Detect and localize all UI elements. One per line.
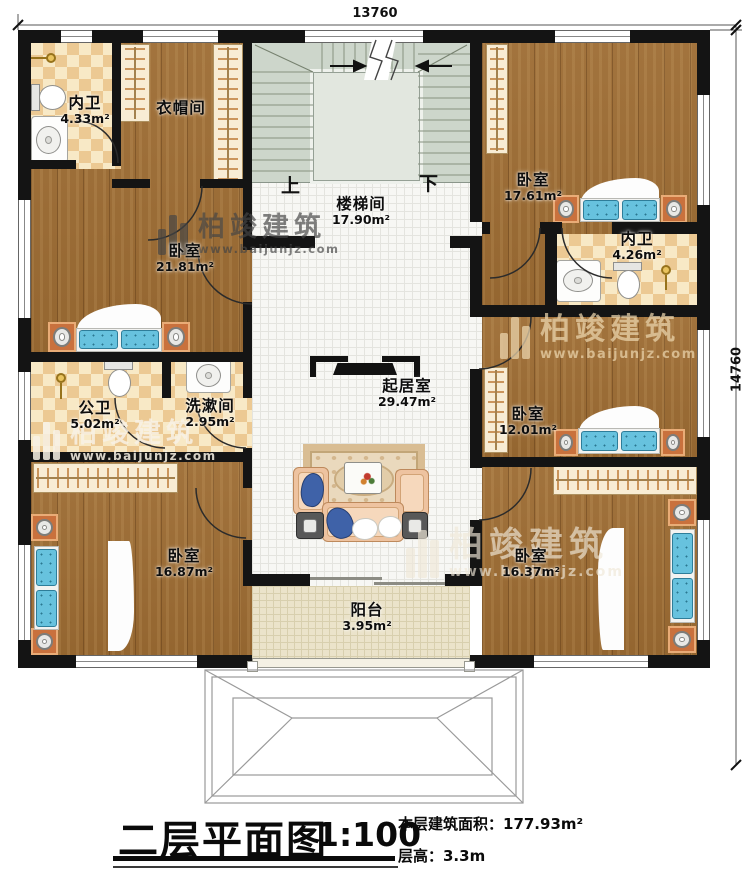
shower-head-icon xyxy=(56,373,66,383)
room-label-bedroom-bottomleft: 卧室 16.87m² xyxy=(155,548,213,579)
room-label-cloakroom: 衣帽间 xyxy=(156,100,206,117)
wall-interior xyxy=(470,30,482,222)
room-area: 12.01m² xyxy=(499,423,557,437)
window xyxy=(697,95,710,205)
sliding-door xyxy=(374,582,445,585)
bed-topleft-pillow xyxy=(79,330,118,349)
tv-bracket-icon xyxy=(414,356,420,377)
wall-interior xyxy=(445,574,470,586)
room-label-bath-right: 内卫 4.26m² xyxy=(612,231,661,262)
wall-interior xyxy=(31,160,76,169)
room-label-stairwell: 楼梯间 17.90m² xyxy=(332,196,390,227)
room-name: 阳台 xyxy=(342,602,391,619)
closet-bedroom-bottomleft xyxy=(33,463,178,493)
sink-icon xyxy=(563,269,593,292)
closet-cloakroom-right xyxy=(213,44,243,186)
bed-bottomright-pillow xyxy=(672,533,693,574)
window xyxy=(697,520,710,640)
side-table-left xyxy=(296,512,324,539)
room-label-bedroom-midright: 卧室 12.01m² xyxy=(499,406,557,437)
room-area: 5.02m² xyxy=(70,417,119,431)
wall-interior xyxy=(243,540,252,586)
nightstand xyxy=(31,628,58,655)
room-area: 2.95m² xyxy=(185,415,235,429)
room-label-living: 起居室 29.47m² xyxy=(378,378,436,409)
porch-roof-outline xyxy=(205,670,523,803)
nightstand xyxy=(661,429,685,456)
stair-up-label: 上 xyxy=(281,171,300,198)
room-name: 起居室 xyxy=(378,378,436,395)
toilet-icon xyxy=(617,270,640,299)
nightstand xyxy=(31,514,58,541)
room-area: 4.26m² xyxy=(612,248,661,262)
bed-midright-pillow xyxy=(621,431,657,451)
closet-bedroom-topright xyxy=(486,44,508,154)
window xyxy=(143,30,218,43)
room-name: 卧室 xyxy=(499,406,557,423)
bed-bottomright-pillow xyxy=(672,578,693,619)
title-underline xyxy=(113,856,395,861)
dimension-right: 14760 xyxy=(730,339,745,401)
room-name: 公卫 xyxy=(70,400,119,417)
window xyxy=(18,200,31,318)
wall-interior xyxy=(540,222,562,234)
room-area: 21.81m² xyxy=(156,260,214,274)
wall-interior xyxy=(243,302,252,398)
wall-interior xyxy=(482,457,697,467)
bed-topleft-pillow xyxy=(121,330,159,349)
wall-interior xyxy=(243,30,252,250)
side-table-right xyxy=(402,512,428,539)
room-label-balcony: 阳台 3.95m² xyxy=(342,602,391,633)
room-label-washroom: 洗漱间 2.95m² xyxy=(185,398,235,429)
sliding-door xyxy=(310,577,382,580)
wall-interior xyxy=(31,452,252,462)
wall-interior xyxy=(162,362,171,398)
nightstand xyxy=(661,195,687,223)
coffee-table xyxy=(344,462,382,494)
bed-bottomright-sheet xyxy=(598,528,624,650)
room-name: 卧室 xyxy=(502,548,560,565)
balcony-rail xyxy=(252,658,470,668)
room-label-bath-topleft: 内卫 4.33m² xyxy=(60,95,109,126)
shower-hose-icon xyxy=(60,383,62,399)
nightstand xyxy=(668,499,696,526)
wall-interior xyxy=(470,248,482,317)
tv-bracket-icon xyxy=(310,356,316,377)
room-label-bath-left: 公卫 5.02m² xyxy=(70,400,119,431)
room-area: 17.61m² xyxy=(504,189,562,203)
room-area: 3.95m² xyxy=(342,619,391,633)
window xyxy=(697,330,710,437)
room-name: 楼梯间 xyxy=(332,196,390,213)
room-name: 卧室 xyxy=(156,243,214,260)
room-area: 16.37m² xyxy=(502,565,560,579)
tv-icon xyxy=(333,363,397,375)
closet-cloakroom-left xyxy=(120,44,150,122)
room-area: 29.47m² xyxy=(378,395,436,409)
room-label-bedroom-topleft: 卧室 21.81m² xyxy=(156,243,214,274)
room-area: 17.90m² xyxy=(332,213,390,227)
shower-head-icon xyxy=(46,53,56,63)
dimension-top: 13760 xyxy=(340,6,410,21)
nightstand xyxy=(554,429,578,456)
sheet-floor-area: 本层建筑面积：177.93m² xyxy=(398,813,583,834)
room-area: 4.33m² xyxy=(60,112,109,126)
wall-interior xyxy=(252,574,310,586)
window xyxy=(18,372,31,440)
wall-interior xyxy=(112,43,121,166)
bed-midright-pillow xyxy=(581,431,618,451)
faucet-knob-icon xyxy=(661,265,671,275)
title-underline-thin xyxy=(113,866,398,868)
room-name: 内卫 xyxy=(60,95,109,112)
wall-interior xyxy=(470,369,482,468)
sheet-floor-height: 层高：3.3m xyxy=(398,845,485,866)
room-name: 内卫 xyxy=(612,231,661,248)
room-area: 16.87m² xyxy=(155,565,213,579)
bed-bottomleft-pillow xyxy=(36,549,57,586)
wall-interior xyxy=(450,236,482,248)
bed-topright-pillow xyxy=(583,200,619,220)
nightstand xyxy=(162,322,190,352)
window xyxy=(305,30,423,43)
nightstand xyxy=(48,322,76,352)
window xyxy=(18,545,31,640)
wall-interior xyxy=(482,305,697,317)
room-label-bedroom-bottomright: 卧室 16.37m² xyxy=(502,548,560,579)
wall-interior xyxy=(31,352,252,362)
wall-interior xyxy=(482,222,490,234)
bed-bottomleft-pillow xyxy=(36,590,57,627)
stair-landing xyxy=(313,72,420,181)
sink-icon xyxy=(36,126,61,154)
window xyxy=(61,30,92,43)
faucet-stem-icon xyxy=(665,275,667,290)
bed-bottomleft-sheet xyxy=(108,541,134,651)
wall-interior xyxy=(112,179,150,188)
sink-icon xyxy=(196,364,221,387)
room-label-bedroom-topright: 卧室 17.61m² xyxy=(504,172,562,203)
room-name: 卧室 xyxy=(504,172,562,189)
window xyxy=(555,30,630,43)
stair-down-label: 下 xyxy=(419,169,438,196)
wall-interior xyxy=(470,520,482,586)
balcony-post xyxy=(464,661,475,672)
floor-plan-sheet: 13760 14760 内卫 4.33m² 衣帽间 卧室 21.81m² 楼梯间… xyxy=(0,0,750,881)
bed-topright-pillow xyxy=(622,200,657,220)
balcony-post xyxy=(247,661,258,672)
nightstand xyxy=(668,626,696,653)
room-name: 洗漱间 xyxy=(185,398,235,415)
window xyxy=(76,655,197,668)
room-name: 衣帽间 xyxy=(156,100,206,117)
wall-interior xyxy=(545,234,557,305)
closet-bedroom-bottomright xyxy=(553,465,697,495)
wall-interior xyxy=(243,236,315,248)
room-name: 卧室 xyxy=(155,548,213,565)
toilet-icon xyxy=(108,369,131,397)
window xyxy=(534,655,648,668)
